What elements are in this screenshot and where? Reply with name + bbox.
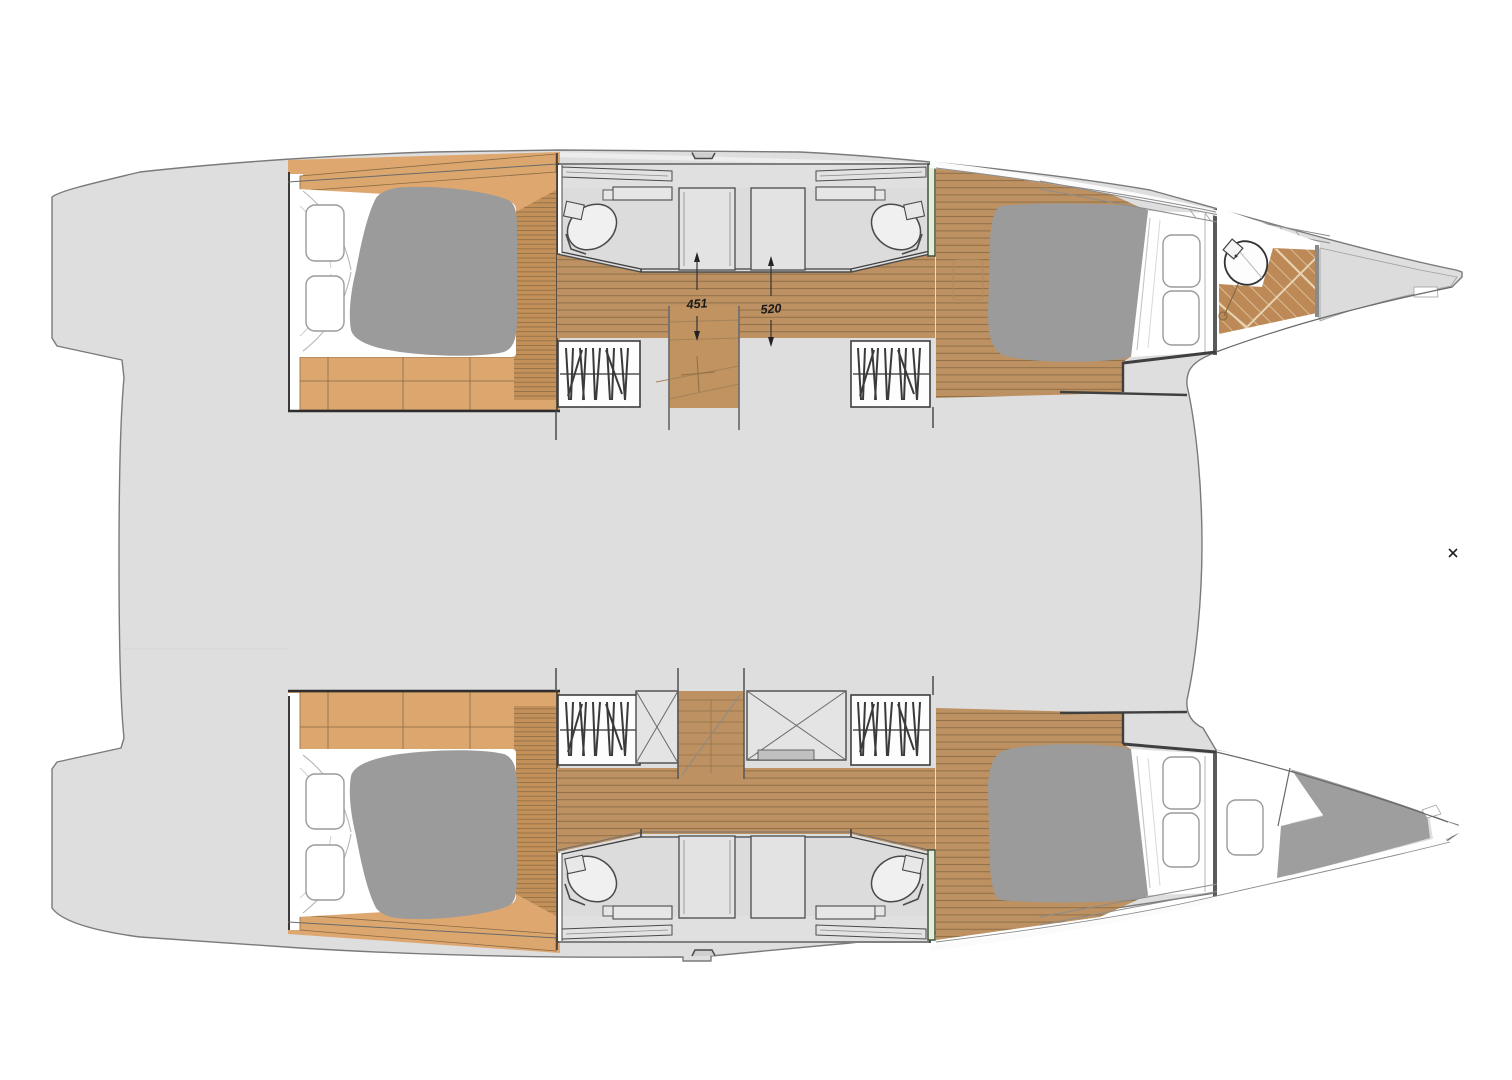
svg-text:451: 451 — [685, 296, 708, 311]
svg-text:520: 520 — [760, 301, 782, 316]
